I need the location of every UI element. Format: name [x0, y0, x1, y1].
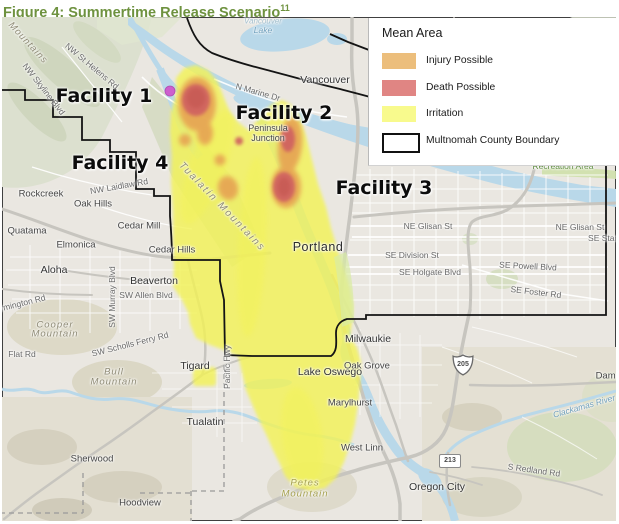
irritation-swatch: [382, 106, 416, 122]
injury-swatch: [382, 53, 416, 69]
interstate-205-number: 205: [452, 361, 474, 368]
figure-title-superscript: 11: [280, 3, 290, 13]
legend-label-irritation: Irritation: [426, 108, 463, 119]
legend-title: Mean Area: [382, 26, 442, 40]
interstate-205-shield: 205: [452, 354, 474, 376]
map-legend: Mean Area Injury Possible Death Possible…: [368, 18, 616, 166]
legend-label-injury: Injury Possible: [426, 55, 493, 66]
route-213-shield: 213: [439, 454, 461, 468]
legend-label-death: Death Possible: [426, 82, 495, 93]
irritation-detached-patch: [193, 367, 216, 386]
boundary-swatch: [382, 133, 420, 153]
map-canvas: Facility 1Facility 2Facility 3Facility 4…: [2, 17, 616, 521]
facility-marker-dot: [165, 86, 175, 96]
death-swatch: [382, 80, 416, 96]
legend-label-boundary: Multnomah County Boundary: [426, 135, 559, 146]
route-213-number: 213: [439, 454, 461, 468]
report-figure: Figure 4: Summertime Release Scenario11: [0, 0, 619, 524]
figure-title: Figure 4: Summertime Release Scenario11: [3, 0, 290, 17]
